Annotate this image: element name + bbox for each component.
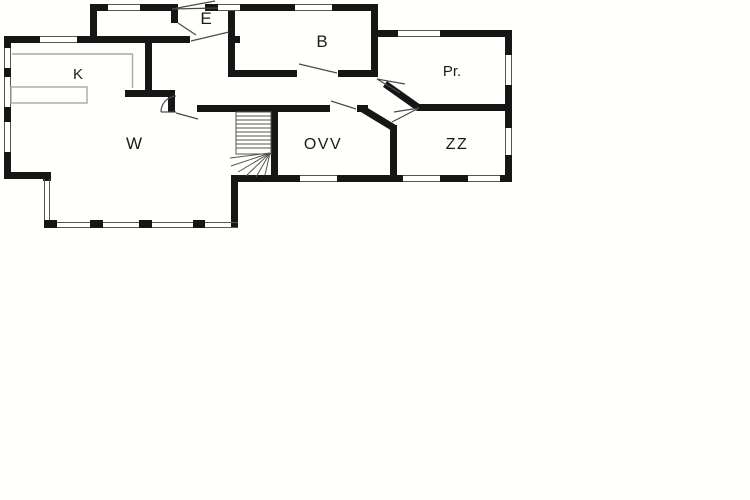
room-label-pr: Pr. [443,63,461,80]
stair-winder-fan [230,153,270,177]
room-label-ovv: OVV [304,136,342,153]
floor-plan-canvas: E B Pr. K W OVV ZZ [0,0,750,500]
bay-window-wall-group [44,179,238,228]
room-label-b: B [316,32,327,51]
room-label-e: E [200,9,211,28]
floor-plan: E B Pr. K W OVV ZZ [0,0,750,500]
room-label-k: K [73,66,83,83]
kitchen-counter [11,87,87,103]
room-label-zz: ZZ [446,136,469,153]
room-label-w: W [126,134,142,153]
door-openings-group [170,3,357,113]
staircase [230,112,271,177]
